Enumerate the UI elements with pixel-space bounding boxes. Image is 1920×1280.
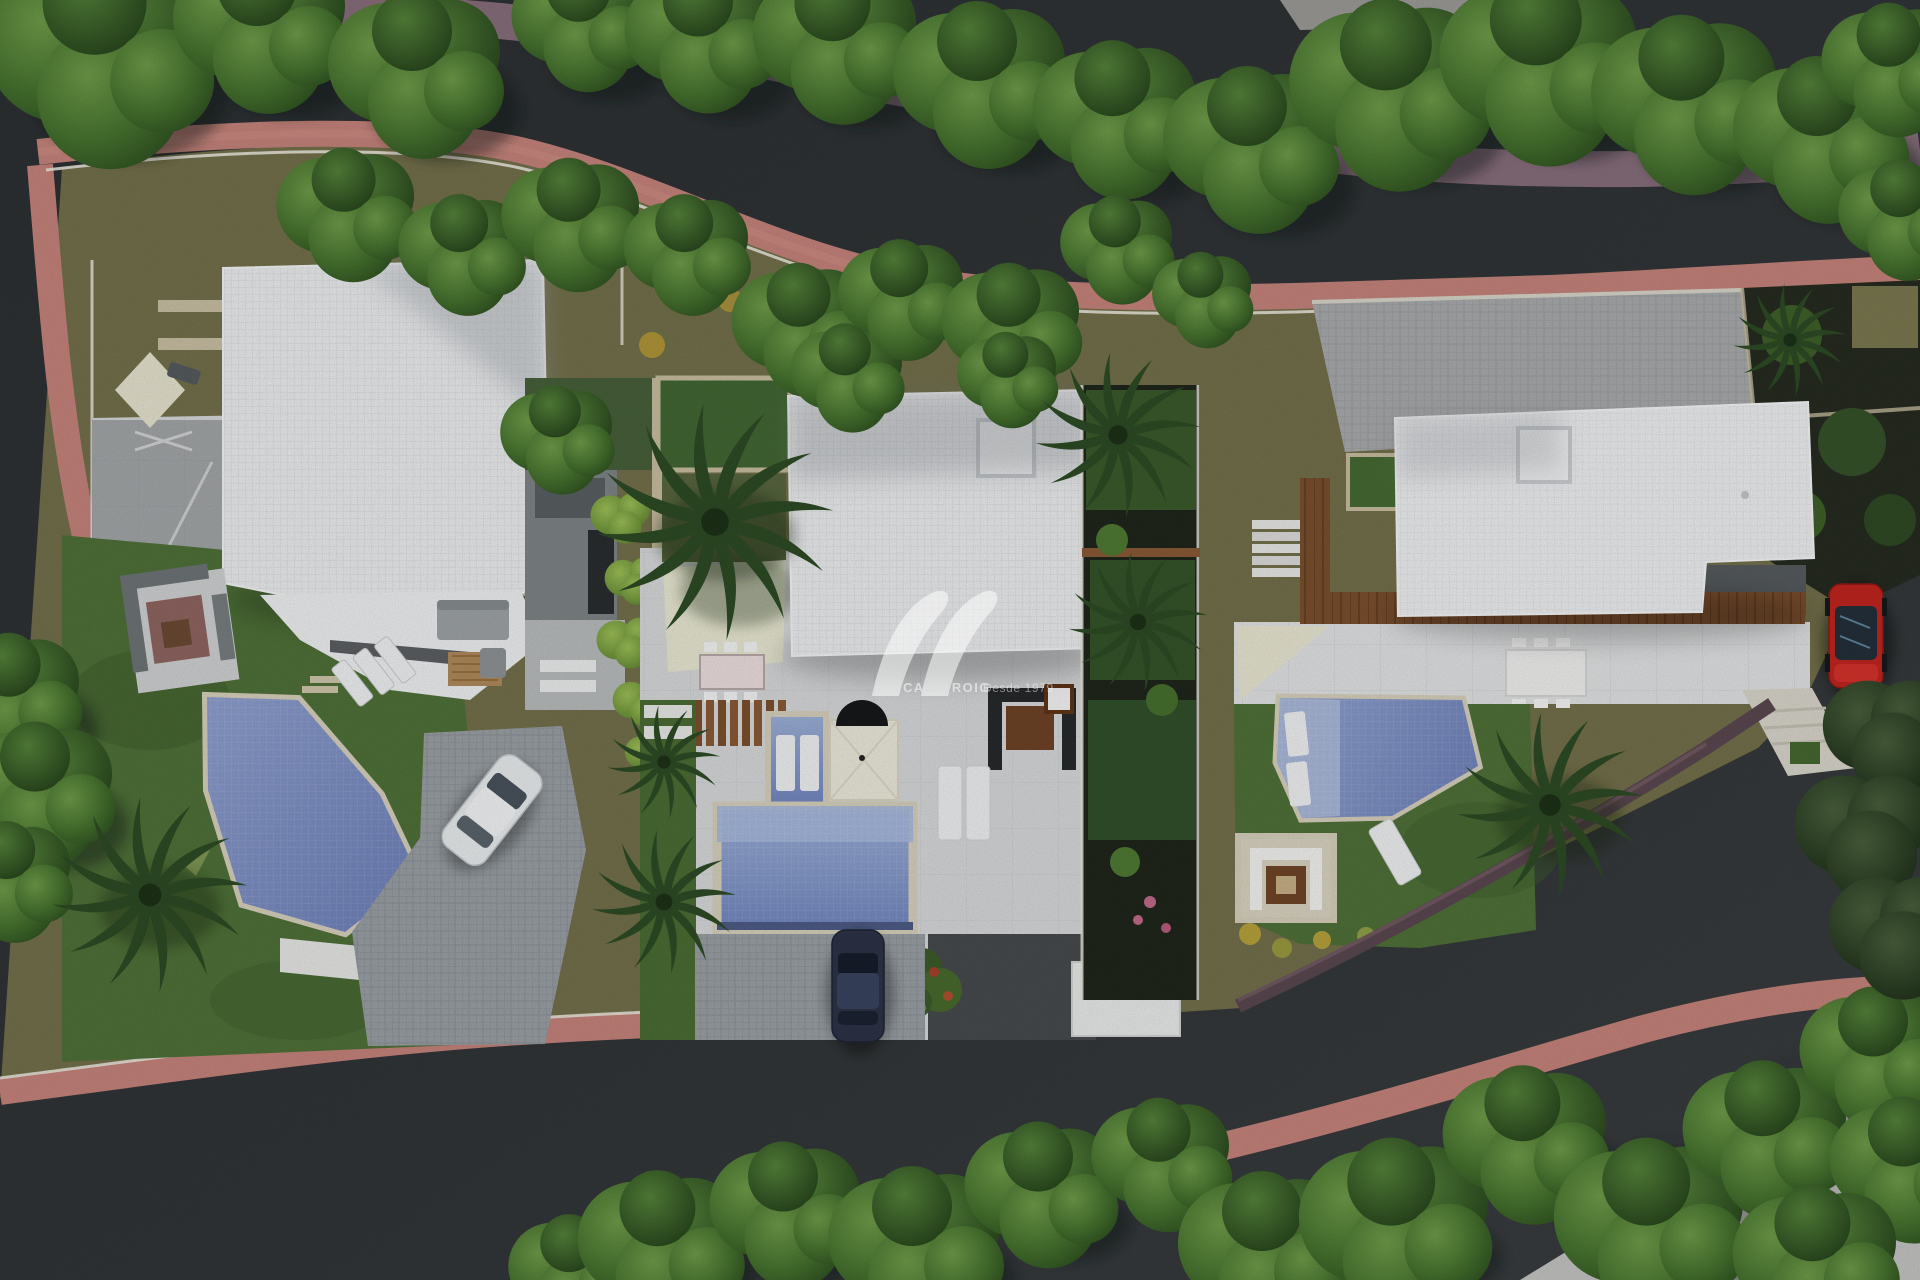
brand-tagline: Desde 1979 [983,681,1054,695]
aerial-villa-site-render: CABO ROIG Desde 1979 [0,0,1920,1280]
brand-name: CABO ROIG [903,680,991,695]
site-plan-canvas: CABO ROIG Desde 1979 [0,0,1920,1280]
